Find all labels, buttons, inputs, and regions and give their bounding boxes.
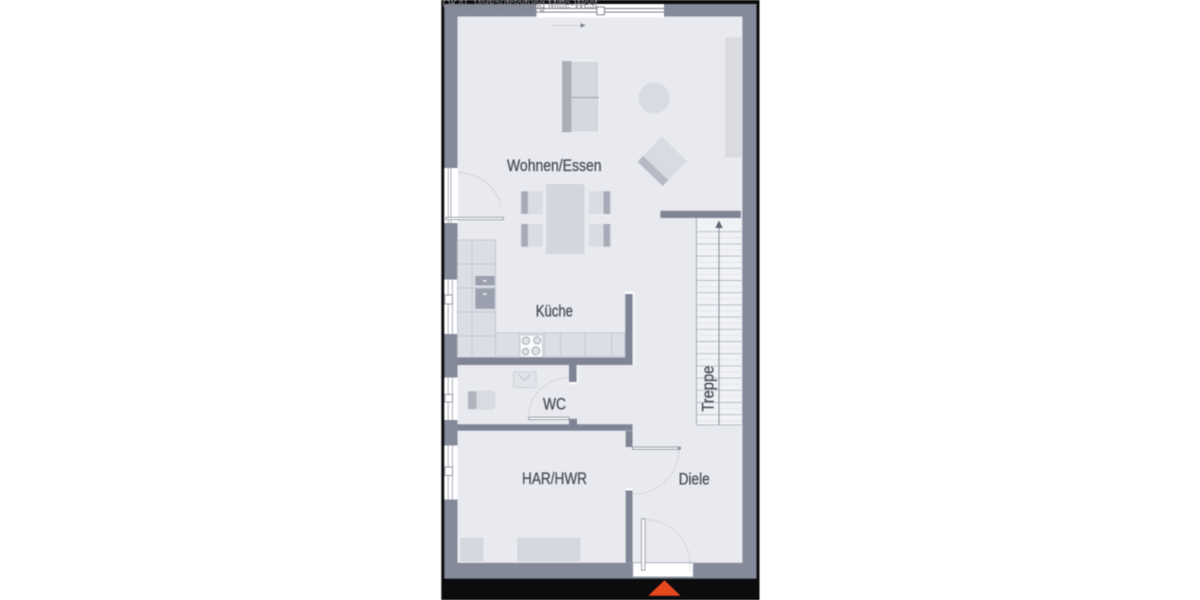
svg-text:Wohnen/Essen: Wohnen/Essen — [507, 157, 602, 175]
svg-text:OKAL-Verkaufsleitung Mitte-Wes: OKAL-Verkaufsleitung Mitte-West — [443, 0, 598, 11]
svg-text:Küche: Küche — [536, 303, 573, 321]
svg-text:Diele: Diele — [679, 471, 710, 489]
svg-text:WC: WC — [543, 396, 566, 414]
svg-text:Treppe: Treppe — [700, 366, 718, 412]
svg-text:HAR/HWR: HAR/HWR — [522, 470, 587, 488]
